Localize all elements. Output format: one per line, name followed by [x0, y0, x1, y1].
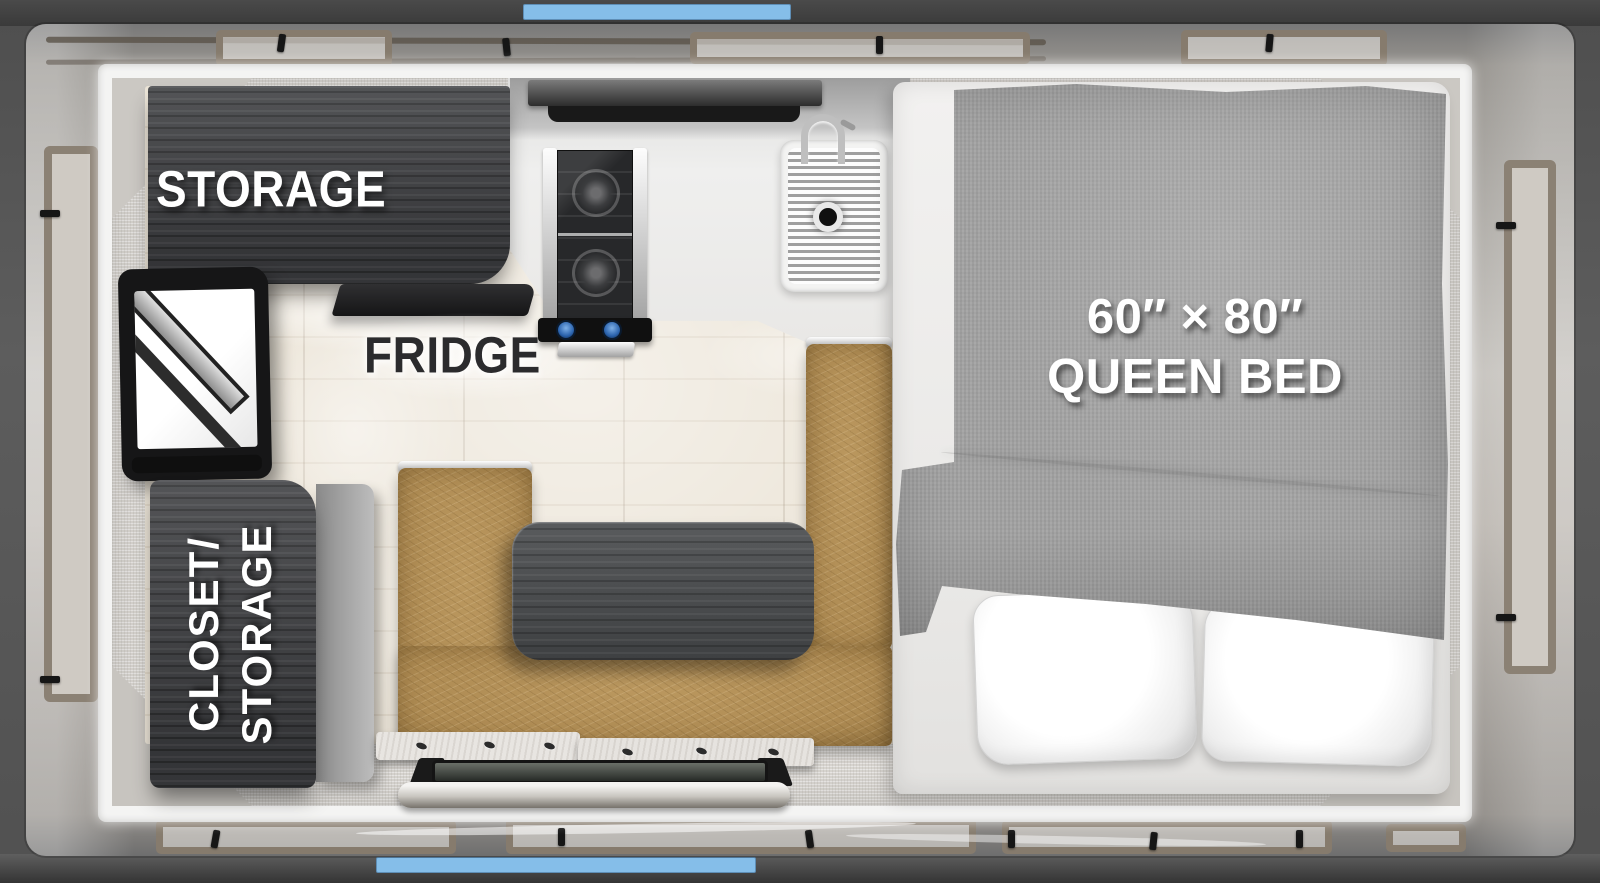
- roof-vent-bar-top: [523, 4, 791, 20]
- step-screw: [695, 746, 707, 755]
- sink-drain: [813, 202, 843, 232]
- closet-side-panel: [316, 484, 374, 782]
- right-window-latch-1: [1496, 222, 1516, 229]
- range-hood: [528, 80, 822, 106]
- stove-burner-rear: [572, 249, 620, 297]
- tv-panel: [118, 266, 272, 481]
- stove-drip-tray: [557, 342, 635, 357]
- stove-control-panel: [538, 318, 652, 342]
- stove-rail-left: [543, 148, 557, 324]
- bed-size-label: 60″ × 80″: [1010, 288, 1380, 348]
- tv-screen: [134, 289, 257, 449]
- storage-label: STORAGE: [156, 159, 386, 218]
- range-hood-vent: [548, 106, 800, 122]
- left-window-latch-1: [40, 210, 60, 217]
- right-window-latch-2: [1496, 614, 1516, 621]
- closet-label: CLOSET/ STORAGE: [178, 504, 288, 764]
- stove-burner-front: [572, 169, 620, 217]
- top-window-1: [216, 30, 392, 66]
- entry-door-handle: [398, 782, 790, 808]
- dinette-bench-bottom: [398, 646, 892, 746]
- outer-bottom-strip: [0, 854, 1600, 883]
- closet-label-line1: CLOSET/: [178, 504, 231, 764]
- step-screw: [621, 747, 633, 756]
- stove-glass-top: [557, 150, 633, 320]
- step-screw: [543, 741, 555, 750]
- left-wall-window: [44, 146, 98, 702]
- bed-pillow-left: [972, 588, 1198, 766]
- bottom-window-latch-4: [1008, 830, 1015, 848]
- stove-glass-divider: [558, 233, 632, 236]
- top-window-latch-3: [876, 36, 883, 54]
- tv-base-bar: [132, 455, 262, 474]
- bed-label: 60″ × 80″ QUEEN BED: [1010, 288, 1380, 408]
- sink-faucet: [801, 114, 845, 164]
- storage-cabinet: STORAGE: [148, 86, 510, 284]
- step-screw: [415, 741, 427, 750]
- step-screw: [767, 747, 779, 756]
- stove-rail-right: [633, 148, 647, 324]
- top-window-2: [690, 32, 1030, 64]
- bottom-window-4: [1386, 824, 1466, 852]
- right-wall-window: [1504, 160, 1556, 674]
- dinette-table: [512, 522, 814, 660]
- stove-knob-left: [556, 320, 576, 340]
- bed-type-label: QUEEN BED: [1010, 348, 1380, 408]
- bottom-window-latch-2: [558, 828, 565, 846]
- bottom-window-latch-6: [1296, 830, 1303, 848]
- bottom-window-1: [156, 820, 456, 854]
- step-screw: [483, 740, 495, 749]
- outer-top-strip: [0, 0, 1600, 26]
- top-window-3: [1181, 30, 1387, 66]
- entry-door-glass: [432, 760, 768, 784]
- dinette-bench-right: [806, 344, 892, 650]
- closet-label-line2: STORAGE: [231, 504, 284, 764]
- left-window-latch-2: [40, 676, 60, 683]
- roof-vent-bar-bottom: [376, 857, 756, 873]
- fridge-label: FRIDGE: [364, 325, 541, 384]
- entry-step-left: [376, 732, 580, 760]
- rv-floorplan-scene: STORAGE FRIDGE CLOSET/ STORAGE: [0, 0, 1600, 883]
- stove-knob-right: [602, 320, 622, 340]
